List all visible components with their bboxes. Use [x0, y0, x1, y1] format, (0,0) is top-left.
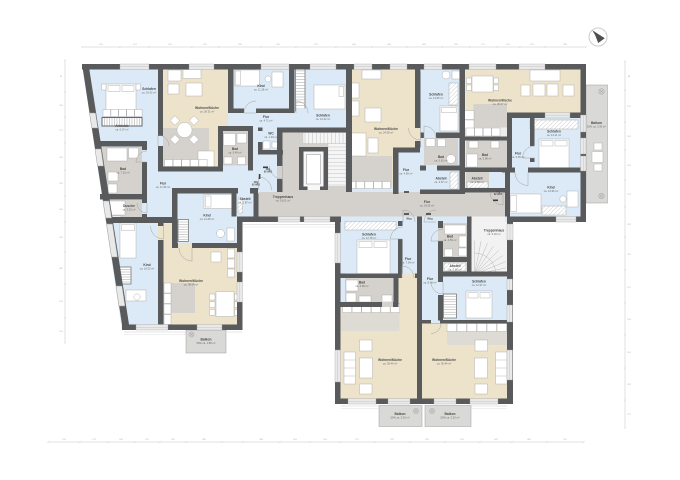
- svg-text:Balkon: Balkon: [445, 412, 456, 416]
- svg-text:WC: WC: [268, 132, 274, 136]
- svg-text:Bad: Bad: [232, 147, 238, 151]
- svg-text:50% ca. 2.20 m²: 50% ca. 2.20 m²: [441, 416, 460, 420]
- svg-text:Dusche: Dusche: [123, 204, 135, 208]
- svg-text:Flur: Flur: [424, 200, 431, 204]
- svg-text:Schlafen: Schlafen: [547, 130, 561, 134]
- svg-text:ca. 2.02 m²: ca. 2.02 m²: [471, 180, 484, 184]
- svg-text:ca. 13.96 m²: ca. 13.96 m²: [544, 189, 559, 193]
- svg-text:92-W02: 92-W02: [264, 171, 273, 174]
- svg-text:ca. 38.64 m²: ca. 38.64 m²: [184, 283, 199, 287]
- svg-text:ca. 26.07 m²: ca. 26.07 m²: [493, 102, 508, 106]
- svg-text:ca. 30.44 m²: ca. 30.44 m²: [383, 362, 398, 366]
- svg-text:Flur: Flur: [515, 152, 522, 156]
- svg-text:ca. 11.28 m²: ca. 11.28 m²: [254, 88, 268, 92]
- svg-text:Bad: Bad: [482, 153, 488, 157]
- svg-text:Wohnen/Küche: Wohnen/Küche: [432, 358, 456, 362]
- svg-text:ca. 6.07 m²: ca. 6.07 m²: [116, 128, 129, 132]
- svg-text:Abstell: Abstell: [450, 264, 461, 268]
- svg-text:Schlafen: Schlafen: [472, 280, 486, 284]
- svg-text:ca. 1.87 m²: ca. 1.87 m²: [239, 201, 252, 205]
- svg-text:Balkon: Balkon: [591, 121, 602, 125]
- svg-text:Kind: Kind: [143, 263, 150, 267]
- svg-text:Schlafen: Schlafen: [429, 93, 443, 97]
- svg-text:ca. 12.97 m²: ca. 12.97 m²: [472, 283, 487, 287]
- svg-text:Wohnen/Küche: Wohnen/Küche: [374, 127, 398, 131]
- svg-text:Flur: Flur: [405, 257, 412, 261]
- svg-text:Abstell: Abstell: [436, 177, 447, 181]
- svg-text:ca. 1.49 m²: ca. 1.49 m²: [265, 135, 278, 139]
- svg-text:Wng: Wng: [406, 218, 412, 221]
- svg-text:Treppenhaus: Treppenhaus: [484, 229, 505, 233]
- svg-text:Kind: Kind: [547, 186, 554, 190]
- svg-text:Wohnen/Küche: Wohnen/Küche: [378, 358, 402, 362]
- svg-text:ca. 28.31 m²: ca. 28.31 m²: [200, 110, 215, 114]
- svg-text:Ankleide: Ankleide: [115, 124, 129, 128]
- svg-text:ca. 5.98 m²: ca. 5.98 m²: [479, 157, 492, 161]
- svg-text:Bad: Bad: [359, 281, 365, 285]
- svg-text:92-W05: 92-W05: [494, 193, 503, 196]
- svg-text:Wohnen/Küche: Wohnen/Küche: [179, 279, 203, 283]
- svg-text:ca. 5.62 m²: ca. 5.62 m²: [435, 159, 448, 163]
- svg-text:ca. 14.28 m²: ca. 14.28 m²: [200, 217, 215, 221]
- svg-text:50% ca. 2.20 m²: 50% ca. 2.20 m²: [391, 416, 410, 420]
- svg-text:Balkon: Balkon: [395, 412, 406, 416]
- svg-text:Schlafen: Schlafen: [142, 87, 156, 91]
- svg-text:Balkon: Balkon: [201, 338, 212, 342]
- svg-text:Flur: Flur: [427, 277, 434, 281]
- svg-text:ca. 19.01 m²: ca. 19.01 m²: [276, 199, 291, 203]
- svg-text:ca. 11.90 m²: ca. 11.90 m²: [156, 185, 170, 189]
- svg-text:Kind: Kind: [203, 214, 210, 218]
- svg-text:ca. 7.15 m²: ca. 7.15 m²: [117, 171, 130, 175]
- svg-text:ca. 18.32 m²: ca. 18.32 m²: [140, 267, 155, 271]
- svg-text:ca. 3.57 m²: ca. 3.57 m²: [435, 180, 448, 184]
- svg-text:ca. 4.71 m²: ca. 4.71 m²: [260, 119, 273, 123]
- svg-text:ca. 3.03 m²: ca. 3.03 m²: [488, 232, 501, 236]
- svg-text:ca. 13.11 m²: ca. 13.11 m²: [547, 133, 561, 137]
- svg-text:Wohnen/Küche: Wohnen/Küche: [488, 99, 512, 103]
- svg-text:Flur: Flur: [263, 115, 270, 119]
- svg-text:ca. 16.62 m²: ca. 16.62 m²: [142, 91, 157, 95]
- svg-text:Bad: Bad: [438, 155, 444, 159]
- svg-text:ca. 9.05 m²: ca. 9.05 m²: [512, 155, 525, 159]
- svg-text:Kind: Kind: [257, 84, 264, 88]
- svg-text:Schlafen: Schlafen: [362, 233, 376, 237]
- svg-text:ca. 14.05 m²: ca. 14.05 m²: [429, 96, 444, 100]
- svg-text:ca. 13.22 m²: ca. 13.22 m²: [316, 117, 331, 121]
- svg-text:ca. 19.06 m²: ca. 19.06 m²: [420, 204, 435, 208]
- svg-text:ca. 1.68 m²: ca. 1.68 m²: [449, 268, 462, 272]
- svg-text:ca. 7.04 m²: ca. 7.04 m²: [402, 261, 415, 265]
- svg-text:Flur: Flur: [403, 168, 410, 172]
- svg-text:ca. 3.23 m²: ca. 3.23 m²: [123, 208, 136, 212]
- svg-text:92-W01: 92-W01: [252, 184, 261, 187]
- svg-text:Wng: Wng: [427, 218, 433, 221]
- svg-text:50% ca. 3.30 m²: 50% ca. 3.30 m²: [587, 125, 606, 129]
- svg-text:Wohnen/Küche: Wohnen/Küche: [195, 106, 219, 110]
- svg-text:ca. 4.50 m²: ca. 4.50 m²: [444, 238, 457, 242]
- svg-text:Schlafen: Schlafen: [316, 114, 330, 118]
- svg-text:ca. 30.44 m²: ca. 30.44 m²: [437, 362, 452, 366]
- svg-text:Flur: Flur: [160, 182, 167, 186]
- svg-text:Treppenhaus: Treppenhaus: [273, 195, 294, 199]
- svg-text:ca. 12.78 m²: ca. 12.78 m²: [362, 236, 377, 240]
- svg-text:ca. 4.99 m²: ca. 4.99 m²: [356, 284, 369, 288]
- svg-text:Bad: Bad: [120, 167, 126, 171]
- svg-text:Abstell: Abstell: [472, 177, 483, 181]
- svg-text:Abstell: Abstell: [240, 197, 251, 201]
- svg-text:50% ca. 1.88 m²: 50% ca. 1.88 m²: [197, 341, 216, 345]
- svg-text:ca. 24.08 m²: ca. 24.08 m²: [379, 131, 394, 135]
- svg-text:Bad: Bad: [447, 235, 453, 239]
- svg-text:ca. 5.49 m²: ca. 5.49 m²: [229, 151, 242, 155]
- svg-text:ca. 4.69 m²: ca. 4.69 m²: [400, 172, 413, 176]
- svg-text:ca. 8.04 m²: ca. 8.04 m²: [424, 281, 437, 285]
